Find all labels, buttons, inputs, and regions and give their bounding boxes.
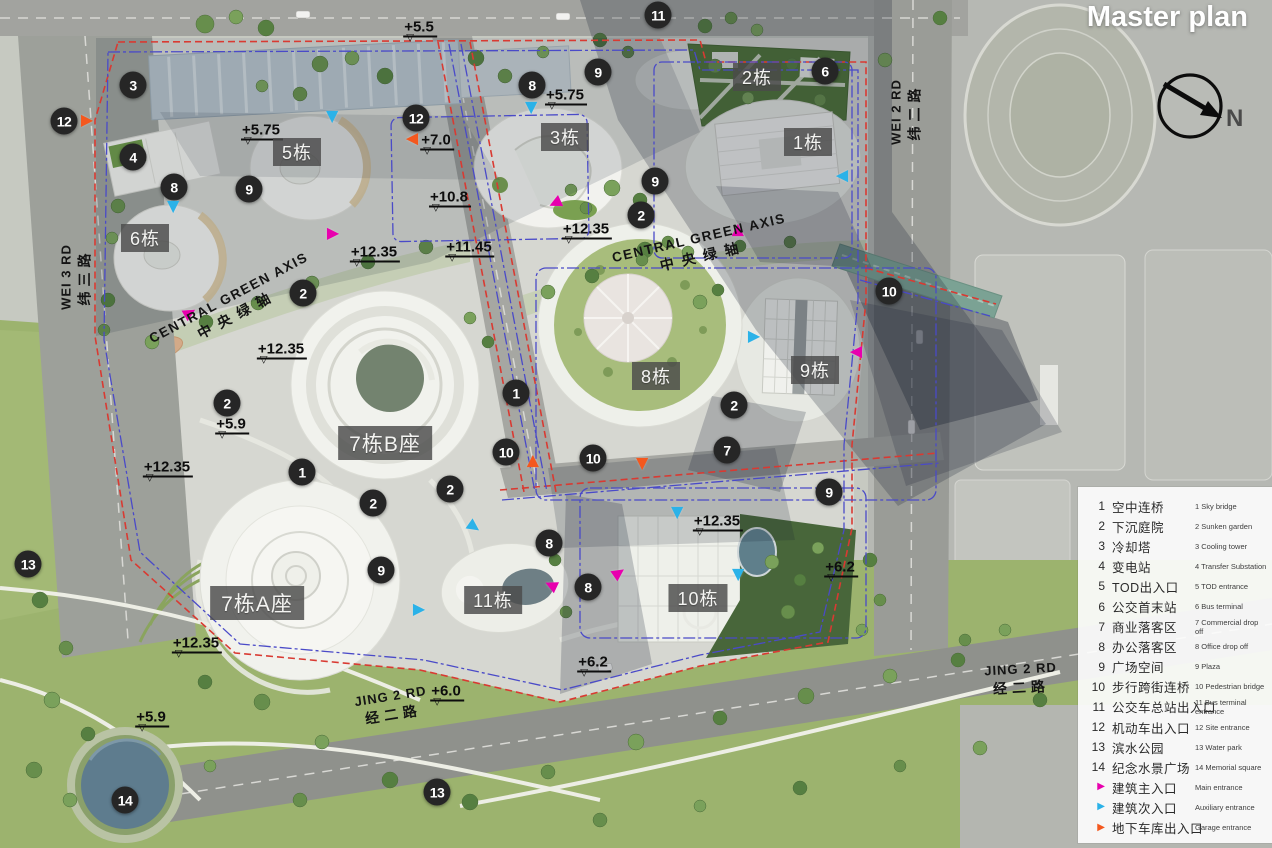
map-marker-14: 14 bbox=[112, 787, 139, 814]
elevation-label: +5.5▽ bbox=[403, 19, 437, 36]
aux-entrance-arrow-icon: ▶ bbox=[324, 111, 340, 123]
map-marker-13: 13 bbox=[15, 551, 42, 578]
map-marker-8: 8 bbox=[519, 72, 546, 99]
elevation-label: +6.2▽ bbox=[824, 559, 858, 576]
garage-entrance-arrow-icon: ▶ bbox=[406, 131, 418, 147]
elevation-label: +12.35▽ bbox=[693, 513, 743, 530]
elevation-label: +10.8▽ bbox=[429, 189, 471, 206]
legend-row: 14纪念水景广场14 Memorial square bbox=[1088, 757, 1268, 777]
aux-entrance-arrow-icon: ▶ bbox=[165, 201, 181, 213]
legend-row: 11公交车总站出入口11 Bus terminal entrance bbox=[1088, 697, 1268, 717]
road-label: WEI 3 RD纬三路 bbox=[58, 244, 93, 310]
map-marker-13: 13 bbox=[424, 779, 451, 806]
legend-panel: 1空中连桥1 Sky bridge2下沉庭院2 Sunken garden3冷却… bbox=[1078, 487, 1272, 843]
main-entrance-legend-icon: ▶ bbox=[1088, 782, 1105, 792]
map-marker-8: 8 bbox=[161, 174, 188, 201]
legend-row: 6公交首末站6 Bus terminal bbox=[1088, 596, 1268, 616]
legend-row: 10步行跨街连桥10 Pedestrian bridge bbox=[1088, 677, 1268, 697]
garage-entrance-arrow-icon: ▶ bbox=[81, 113, 93, 129]
legend-row: 5TOD出入口5 TOD entrance bbox=[1088, 576, 1268, 596]
legend-row: 7商业落客区7 Commercial drop off bbox=[1088, 617, 1268, 637]
map-marker-2: 2 bbox=[214, 390, 241, 417]
map-marker-2: 2 bbox=[437, 476, 464, 503]
elevation-label: +5.75▽ bbox=[241, 122, 283, 139]
map-marker-11: 11 bbox=[645, 2, 672, 29]
map-marker-9: 9 bbox=[368, 557, 395, 584]
legend-row: 12机动车出入口12 Site entrance bbox=[1088, 717, 1268, 737]
main-entrance-arrow-icon: ▶ bbox=[609, 563, 628, 583]
map-marker-9: 9 bbox=[585, 59, 612, 86]
map-marker-1: 1 bbox=[503, 380, 530, 407]
main-entrance-arrow-icon: ▶ bbox=[546, 193, 564, 213]
building-label: 11栋 bbox=[464, 586, 522, 614]
elevation-label: +12.35▽ bbox=[143, 459, 193, 476]
aux-entrance-arrow-icon: ▶ bbox=[413, 602, 425, 618]
main-entrance-arrow-icon: ▶ bbox=[327, 226, 339, 242]
legend-row: 1空中连桥1 Sky bridge bbox=[1088, 496, 1268, 516]
map-marker-8: 8 bbox=[536, 530, 563, 557]
map-marker-2: 2 bbox=[360, 490, 387, 517]
map-marker-1: 1 bbox=[289, 459, 316, 486]
legend-row: 9广场空间9 Plaza bbox=[1088, 657, 1268, 677]
building-label: 2栋 bbox=[733, 63, 781, 91]
map-marker-2: 2 bbox=[628, 202, 655, 229]
main-entrance-arrow-icon: ▶ bbox=[542, 575, 560, 595]
map-marker-7: 7 bbox=[714, 437, 741, 464]
building-label: 5栋 bbox=[273, 138, 321, 166]
aux-entrance-arrow-icon: ▶ bbox=[836, 168, 848, 184]
legend-row: ▶地下车库出入口Garage entrance bbox=[1088, 818, 1268, 838]
building-label: 7栋A座 bbox=[210, 586, 304, 620]
elevation-label: +6.0▽ bbox=[430, 683, 464, 700]
building-label: 1栋 bbox=[784, 128, 832, 156]
map-marker-9: 9 bbox=[816, 479, 843, 506]
garage-entrance-arrow-icon: ▶ bbox=[634, 458, 650, 470]
north-arrow: N bbox=[1150, 68, 1254, 148]
legend-row: 2下沉庭院2 Sunken garden bbox=[1088, 516, 1268, 536]
legend-row: 8办公落客区8 Office drop off bbox=[1088, 637, 1268, 657]
map-marker-10: 10 bbox=[580, 445, 607, 472]
aux-entrance-arrow-icon: ▶ bbox=[523, 102, 539, 114]
map-marker-12: 12 bbox=[51, 108, 78, 135]
elevation-label: +5.9▽ bbox=[135, 709, 169, 726]
map-marker-12: 12 bbox=[403, 105, 430, 132]
page-title: Master plan bbox=[1087, 1, 1248, 34]
north-label: N bbox=[1226, 105, 1243, 132]
aux-entrance-arrow-icon: ▶ bbox=[730, 569, 746, 581]
legend-row: 3冷却塔3 Cooling tower bbox=[1088, 536, 1268, 556]
legend-row: ▶建筑次入口Auxiliary entrance bbox=[1088, 797, 1268, 817]
building-label: 3栋 bbox=[541, 123, 589, 151]
elevation-label: +11.45▽ bbox=[445, 239, 494, 256]
map-marker-9: 9 bbox=[642, 168, 669, 195]
building-label: 7栋B座 bbox=[338, 426, 432, 460]
elevation-label: +12.35▽ bbox=[257, 341, 307, 358]
main-entrance-arrow-icon: ▶ bbox=[850, 344, 862, 360]
legend-rows: 1空中连桥1 Sky bridge2下沉庭院2 Sunken garden3冷却… bbox=[1088, 496, 1268, 838]
map-marker-2: 2 bbox=[721, 392, 748, 419]
building-label: 10栋 bbox=[668, 584, 727, 612]
map-marker-10: 10 bbox=[493, 439, 520, 466]
elevation-label: +5.75▽ bbox=[545, 87, 587, 104]
garage-entrance-arrow-icon: ▶ bbox=[525, 455, 541, 467]
elevation-label: +12.35▽ bbox=[562, 221, 612, 238]
legend-row: ▶建筑主入口Main entrance bbox=[1088, 777, 1268, 797]
building-label: 6栋 bbox=[121, 224, 169, 252]
map-marker-4: 4 bbox=[120, 144, 147, 171]
map-marker-8: 8 bbox=[575, 574, 602, 601]
garage-entrance-legend-icon: ▶ bbox=[1088, 823, 1105, 833]
elevation-label: +5.9▽ bbox=[215, 416, 249, 433]
road-label: JING 2 RD经二路 bbox=[984, 660, 1058, 699]
aux-entrance-arrow-icon: ▶ bbox=[748, 329, 760, 345]
master-plan-canvas: 113896121248992102212710101292813981314+… bbox=[0, 0, 1272, 848]
road-label: WEI 2 RD纬二路 bbox=[888, 79, 923, 145]
elevation-label: +12.35▽ bbox=[350, 244, 400, 261]
map-marker-10: 10 bbox=[876, 278, 903, 305]
building-label: 8栋 bbox=[632, 362, 680, 390]
building-label: 9栋 bbox=[791, 356, 839, 384]
map-marker-3: 3 bbox=[120, 72, 147, 99]
map-marker-6: 6 bbox=[812, 58, 839, 85]
road-label: JING 2 RD经二路 bbox=[353, 683, 430, 729]
legend-row: 13滨水公园13 Water park bbox=[1088, 737, 1268, 757]
elevation-label: +6.2▽ bbox=[577, 654, 611, 671]
map-marker-9: 9 bbox=[236, 176, 263, 203]
legend-row: 4变电站4 Transfer Substation bbox=[1088, 556, 1268, 576]
elevation-label: +7.0▽ bbox=[420, 132, 454, 149]
aux-entrance-arrow-icon: ▶ bbox=[464, 517, 483, 537]
aux-entrance-legend-icon: ▶ bbox=[1088, 802, 1105, 812]
elevation-label: +12.35▽ bbox=[172, 635, 222, 652]
aux-entrance-arrow-icon: ▶ bbox=[669, 507, 685, 519]
